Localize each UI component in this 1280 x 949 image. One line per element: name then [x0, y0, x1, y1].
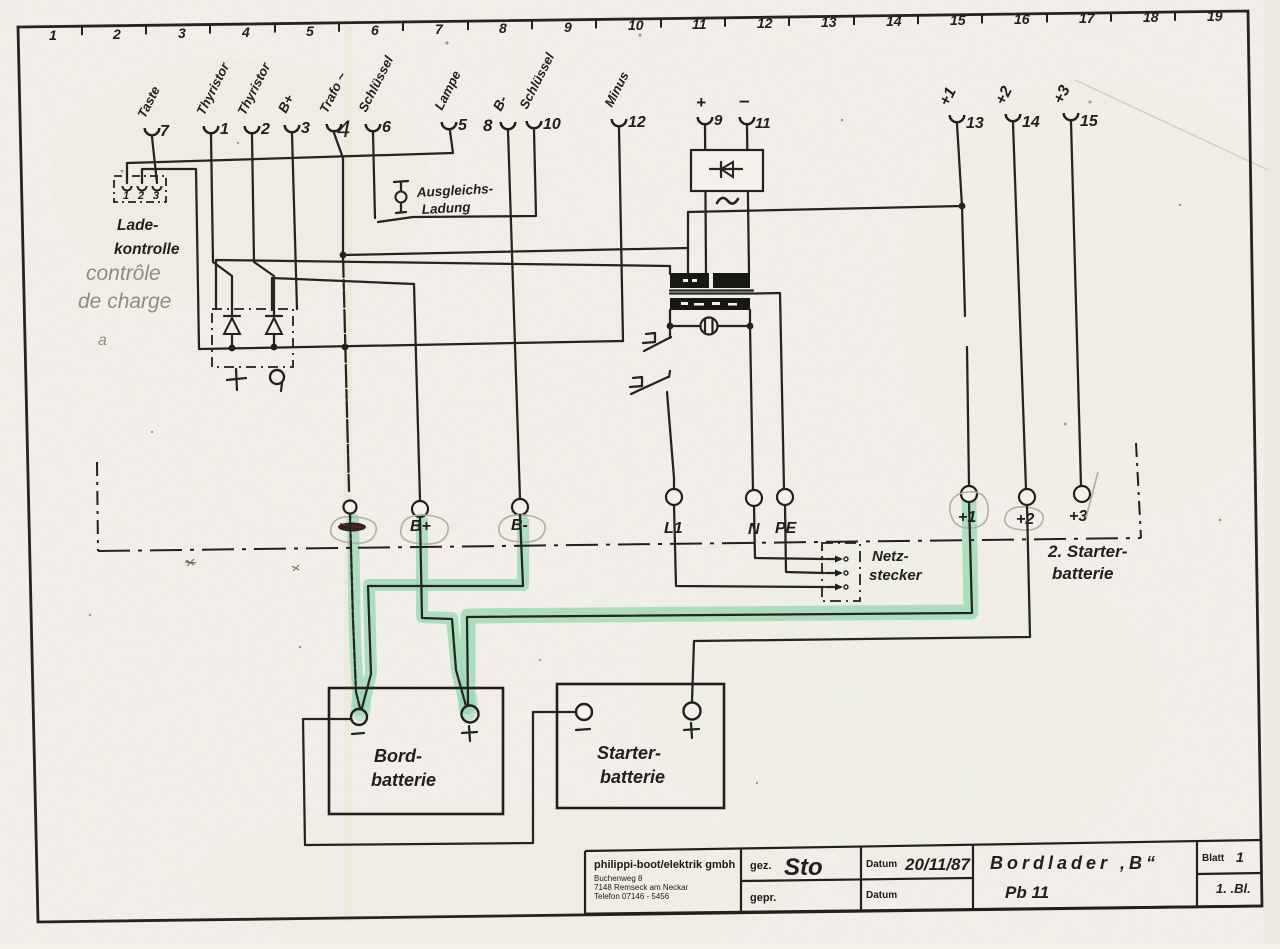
svg-text:8: 8	[499, 20, 507, 36]
svg-text:2: 2	[137, 190, 144, 202]
svg-text:Buchenweg 8: Buchenweg 8	[594, 874, 643, 883]
svg-text:–: –	[739, 91, 750, 112]
svg-text:Bordlader ,B“: Bordlader ,B“	[990, 853, 1159, 873]
svg-text:Telefon 07146 - 5456: Telefon 07146 - 5456	[594, 892, 670, 901]
svg-text:Lade-: Lade-	[117, 217, 158, 234]
svg-text:Pb 11: Pb 11	[1005, 883, 1049, 902]
svg-text:batterie: batterie	[371, 770, 436, 790]
svg-text:9: 9	[714, 112, 723, 129]
svg-text:Datum: Datum	[866, 859, 897, 870]
svg-text:1: 1	[123, 190, 129, 202]
svg-text:a: a	[98, 332, 107, 349]
svg-text:+2: +2	[1016, 511, 1034, 528]
svg-text:+: +	[696, 93, 706, 112]
svg-text:10: 10	[628, 17, 644, 33]
svg-text:Starter-: Starter-	[597, 743, 661, 763]
svg-text:gepr.: gepr.	[750, 892, 776, 904]
svg-text:11: 11	[755, 115, 771, 132]
svg-text:18: 18	[1143, 9, 1159, 25]
svg-text:19: 19	[1207, 8, 1223, 24]
svg-text:12: 12	[757, 15, 773, 31]
svg-text:Datum: Datum	[866, 890, 897, 901]
svg-text:Bord-: Bord-	[374, 746, 422, 766]
svg-text:1: 1	[220, 121, 229, 138]
svg-text:3: 3	[301, 120, 310, 137]
svg-text:2: 2	[112, 26, 121, 42]
svg-text:2. Starter-: 2. Starter-	[1047, 542, 1128, 561]
svg-text:6: 6	[382, 119, 391, 136]
svg-text:3: 3	[153, 190, 159, 202]
svg-text:2: 2	[260, 121, 270, 138]
svg-text:4: 4	[337, 116, 350, 143]
svg-text:3: 3	[178, 25, 186, 41]
svg-text:gez.: gez.	[750, 860, 771, 872]
svg-text:7: 7	[435, 21, 444, 37]
svg-text:Sto: Sto	[784, 854, 823, 881]
svg-text:kontrolle: kontrolle	[114, 241, 180, 258]
svg-text:batterie: batterie	[600, 767, 665, 787]
svg-text:5: 5	[306, 23, 314, 39]
svg-text:philippi-boot/elektrik gmbh: philippi-boot/elektrik gmbh	[594, 859, 735, 871]
svg-text:20/11/87: 20/11/87	[904, 855, 971, 874]
svg-text:10: 10	[543, 116, 561, 133]
svg-text:14: 14	[1022, 114, 1040, 131]
svg-text:5: 5	[458, 117, 468, 134]
svg-text:batterie: batterie	[1052, 564, 1113, 583]
svg-text:14: 14	[886, 13, 902, 29]
svg-text:+3: +3	[1069, 508, 1087, 525]
svg-text:9: 9	[564, 19, 572, 35]
svg-text:17: 17	[1079, 10, 1096, 26]
svg-text:11: 11	[692, 16, 707, 32]
svg-text:1: 1	[49, 27, 57, 43]
svg-text:contrôle: contrôle	[86, 262, 161, 285]
svg-text:+1: +1	[958, 509, 976, 526]
svg-text:13: 13	[966, 115, 984, 132]
svg-text:16: 16	[1014, 11, 1030, 27]
svg-text:stecker: stecker	[869, 567, 923, 584]
svg-text:7: 7	[160, 123, 170, 140]
svg-text:4: 4	[241, 24, 250, 40]
svg-text:15: 15	[950, 12, 966, 28]
svg-text:1. .Bl.: 1. .Bl.	[1216, 881, 1251, 896]
svg-text:Netz-: Netz-	[872, 548, 909, 565]
svg-text:15: 15	[1080, 113, 1099, 130]
svg-text:6: 6	[371, 22, 379, 38]
svg-text:7148 Remseck am Neckar: 7148 Remseck am Neckar	[594, 883, 689, 892]
svg-text:13: 13	[821, 14, 837, 30]
svg-text:Ladung: Ladung	[421, 199, 471, 217]
svg-text:1: 1	[1236, 849, 1244, 865]
svg-text:8: 8	[483, 116, 493, 135]
svg-text:12: 12	[628, 114, 646, 131]
svg-text:de charge: de charge	[78, 290, 171, 313]
svg-text:Blatt: Blatt	[1202, 853, 1225, 864]
